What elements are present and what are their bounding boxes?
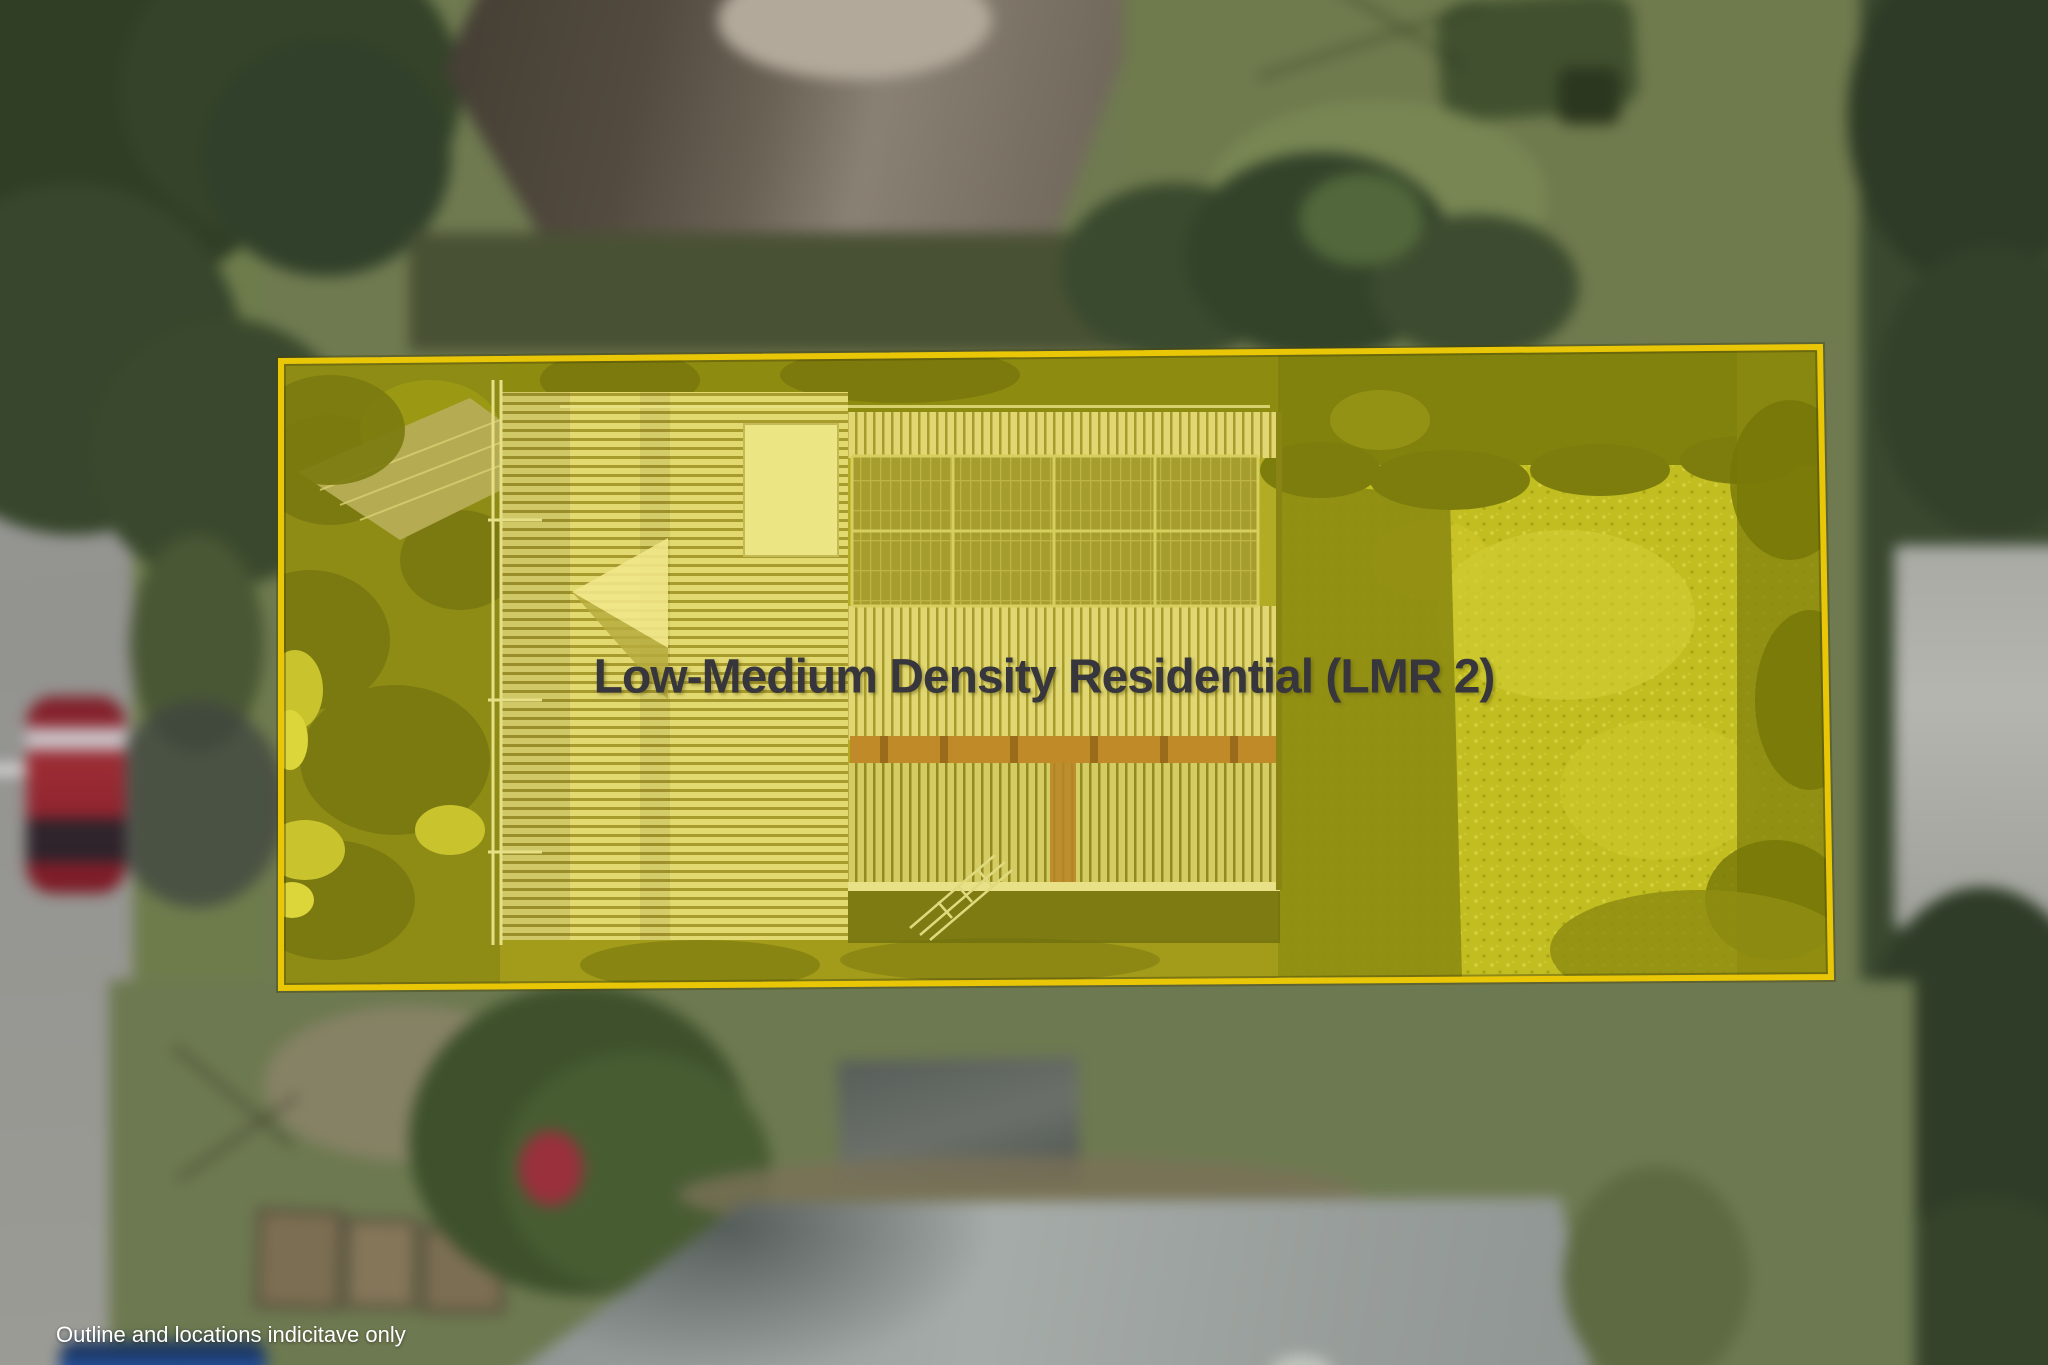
solar-panels <box>852 456 1258 606</box>
zoning-label: Low-Medium Density Residential (LMR 2) <box>594 650 1495 705</box>
roof-panel <box>744 424 838 556</box>
house-shadow-band <box>1278 480 1462 977</box>
aerial-photo-canvas: Low-Medium Density Residential (LMR 2) O… <box>0 0 2048 1365</box>
rust-streak <box>1050 763 1076 885</box>
eave-line <box>848 882 1280 891</box>
rust-gutter <box>850 736 1276 763</box>
disclaimer-text: Outline and locations indicitave only <box>56 1322 406 1348</box>
